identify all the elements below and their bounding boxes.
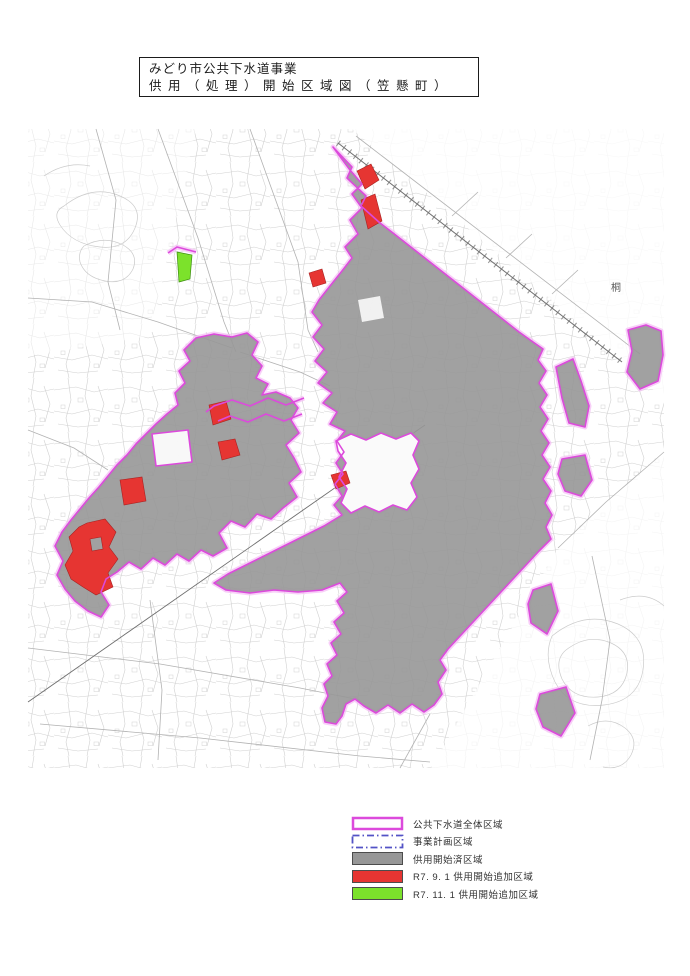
map-label-east: 桐 xyxy=(611,281,621,294)
legend-label: R7. 9. 1 供用開始追加区域 xyxy=(413,869,533,883)
plan-area-swatch xyxy=(351,834,404,849)
added-area-polygon xyxy=(120,477,146,505)
legend-item-r7-11-added-area: R7. 11. 1 供用開始追加区域 xyxy=(351,887,539,900)
title-line-1: みどり市公共下水道事業 xyxy=(149,61,469,78)
overall-area-swatch xyxy=(351,816,404,831)
title-line-2: 供用（処理）開始区域図（笠懸町） xyxy=(149,78,469,95)
legend-label: 供用開始済区域 xyxy=(413,852,483,866)
map-canvas: 桐 xyxy=(0,0,690,976)
r7-11-added-area-swatch xyxy=(351,886,404,901)
legend-item-plan-area: 事業計画区域 xyxy=(351,835,539,848)
legend-label: 公共下水道全体区域 xyxy=(413,817,503,831)
legend-item-r7-9-added-area: R7. 9. 1 供用開始追加区域 xyxy=(351,870,539,883)
legend-label: 事業計画区域 xyxy=(413,834,473,848)
legend-item-overall-area: 公共下水道全体区域 xyxy=(351,817,539,830)
legend-item-served-area: 供用開始済区域 xyxy=(351,852,539,865)
title-box: みどり市公共下水道事業 供用（処理）開始区域図（笠懸町） xyxy=(139,57,479,97)
legend: 公共下水道全体区域 事業計画区域 供用開始済区域 R7. 9. 1 供用開始追加… xyxy=(351,817,539,905)
served-area-swatch xyxy=(351,851,404,866)
r7-9-added-area-swatch xyxy=(351,869,404,884)
page: 桐 xyxy=(0,0,690,976)
added-area-r7-11-polygon xyxy=(177,252,192,282)
legend-label: R7. 11. 1 供用開始追加区域 xyxy=(413,887,539,901)
